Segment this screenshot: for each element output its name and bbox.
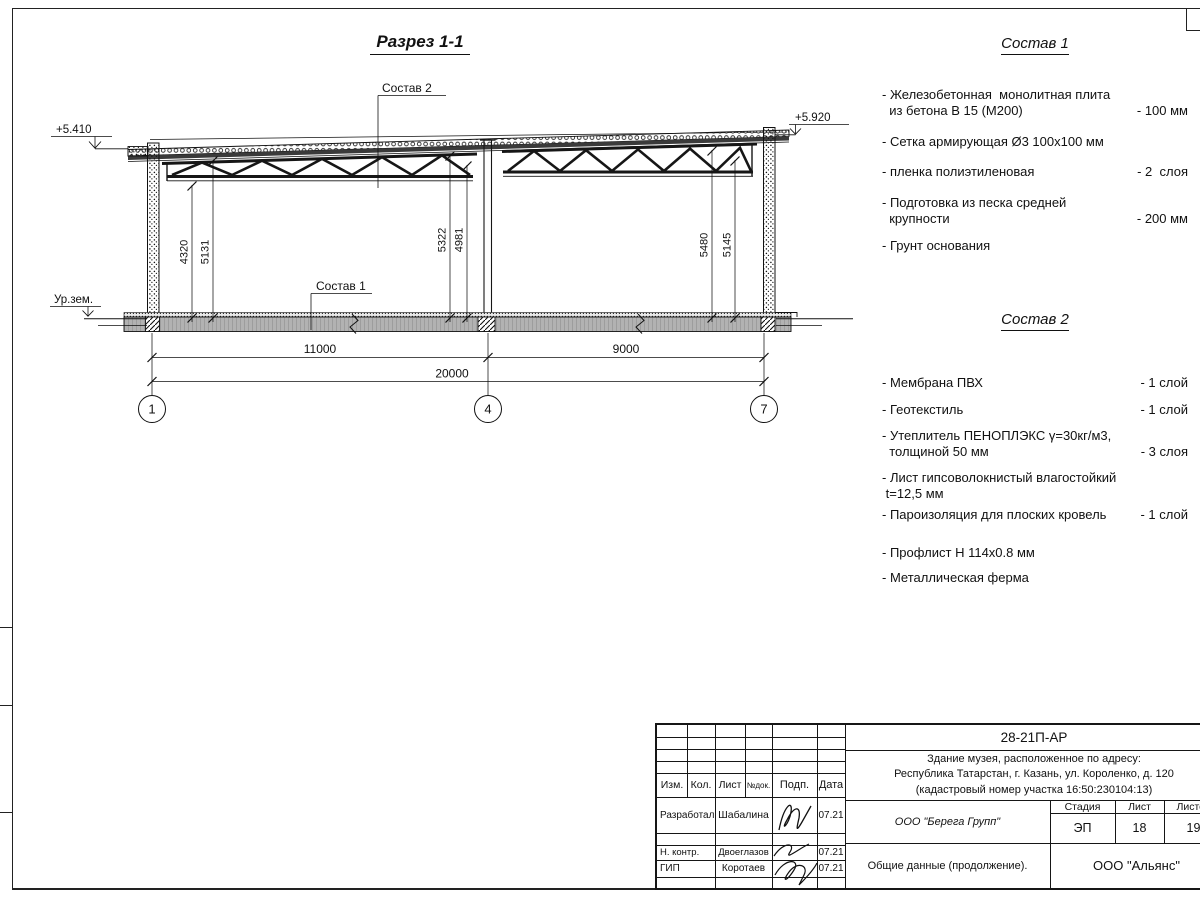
vertical-dimension-labels: 4320 5131 5322 4981 5480 5145: [179, 228, 734, 264]
signature-developer: [772, 797, 817, 835]
svg-text:5131: 5131: [200, 240, 212, 264]
right-wall: [764, 128, 776, 321]
doc-title: Общие данные (продолжение).: [845, 843, 1050, 888]
svg-text:5480: 5480: [699, 233, 711, 257]
stage-label: Стадия: [1050, 800, 1115, 813]
axis-label: 7: [760, 402, 767, 417]
signature-ncontrol-gip: [769, 839, 821, 889]
svg-text:Состав 2: Состав 2: [382, 81, 432, 95]
materials-list-2-title: Состав 2: [882, 312, 1188, 328]
axis-label: 4: [484, 402, 491, 417]
object-description: Здание музея, расположенное по адресу: Р…: [845, 750, 1200, 800]
list-item: - Железобетонная монолитная плита из бет…: [882, 87, 1188, 118]
truss-left: [162, 154, 477, 181]
svg-text:4981: 4981: [454, 228, 466, 252]
materials-list-2: Состав 2 - Мембрана ПВХ- 1 слой - Геотек…: [882, 310, 1188, 600]
svg-text:4320: 4320: [179, 240, 191, 264]
horizontal-dimension-labels: 11000 9000 20000: [304, 342, 640, 381]
col-kol: Кол.: [687, 773, 715, 797]
frame-corner-box: [1186, 8, 1200, 31]
col-list: Лист: [715, 773, 745, 797]
design-company: ООО "Берега Групп": [845, 800, 1050, 843]
list-item: - Лист гипсоволокнистый влагостойкий t=1…: [882, 470, 1188, 501]
date-ncontrol: 07.21: [817, 845, 845, 860]
ground-level-mark: Ур.зем.: [50, 294, 101, 316]
address-line: Здание музея, расположенное по адресу:: [845, 752, 1200, 768]
address-line: (кадастровый номер участка 16:50:230104:…: [845, 783, 1200, 799]
svg-text:5322: 5322: [437, 228, 449, 252]
col-podp: Подп.: [772, 773, 817, 797]
list-item: - пленка полиэтиленовая- 2 слоя: [882, 164, 1188, 180]
list-item: - Металлическая ферма: [882, 570, 1188, 586]
title-block: Изм. Кол. Лист №док. Подп. Дата Разработ…: [655, 723, 1200, 890]
sheets-label: Листов: [1164, 800, 1200, 813]
leader-sostav2: Состав 2: [378, 81, 446, 188]
axis-bubbles: 1 4 7: [139, 396, 778, 423]
list-item: - Профлист Н 114х0.8 мм: [882, 545, 1188, 561]
doc-number: 28-21П-АР: [845, 725, 1200, 750]
middle-column: [480, 140, 496, 317]
contractor: ООО "Альянс": [1050, 843, 1200, 888]
sheet-value: 18: [1115, 813, 1164, 843]
date-gip: 07.21: [817, 860, 845, 877]
view-title: Разрез 1-1: [376, 32, 463, 51]
role-developer: Разработал: [657, 797, 715, 833]
drawing-sheet: Разрез 1-1: [0, 0, 1200, 900]
frame-margin-tick: [0, 812, 12, 813]
materials-list-1-title: Состав 1: [882, 36, 1188, 52]
svg-text:+5.920: +5.920: [795, 112, 831, 124]
section-drawing: Разрез 1-1: [0, 0, 880, 440]
svg-text:Состав 1: Состав 1: [316, 279, 366, 293]
frame-margin-tick: [0, 705, 12, 706]
list-item: - Мембрана ПВХ- 1 слой: [882, 375, 1188, 391]
name-developer: Шабалина: [715, 797, 772, 833]
elevation-mark-left: +5.410: [51, 124, 128, 149]
col-data: Дата: [817, 773, 845, 797]
name-ncontrol: Двоеглазов: [715, 845, 772, 860]
svg-text:9000: 9000: [613, 342, 640, 356]
svg-text:20000: 20000: [435, 367, 469, 381]
col-izm: Изм.: [657, 773, 687, 797]
svg-text:11000: 11000: [304, 342, 337, 356]
list-item: - Геотекстиль- 1 слой: [882, 402, 1188, 418]
sheets-value: 19: [1164, 813, 1200, 843]
svg-text:+5.410: +5.410: [56, 124, 92, 136]
list-item: - Сетка армирующая Ø3 100х100 мм: [882, 134, 1188, 150]
left-wall: [148, 143, 160, 320]
svg-text:Ур.зем.: Ур.зем.: [54, 294, 93, 306]
axis-label: 1: [148, 402, 155, 417]
horizontal-dimensions: [148, 333, 769, 395]
sheet-label: Лист: [1115, 800, 1164, 813]
list-item: - Грунт основания: [882, 238, 1188, 254]
list-item: - Пароизоляция для плоских кровель- 1 сл…: [882, 507, 1188, 523]
role-gip: ГИП: [657, 860, 715, 877]
left-eave-block: [128, 147, 148, 157]
address-line: Республика Татарстан, г. Казань, ул. Кор…: [845, 767, 1200, 783]
role-ncontrol: Н. контр.: [657, 845, 715, 860]
date-developer: 07.21: [817, 797, 845, 833]
floor-slab: [124, 313, 791, 334]
list-item: - Подготовка из песка средней крупности-…: [882, 195, 1188, 226]
list-item: - Утеплитель ПЕНОПЛЭКС γ=30кг/м3, толщин…: [882, 428, 1188, 459]
frame-margin-tick: [0, 627, 12, 628]
stage-value: ЭП: [1050, 813, 1115, 843]
materials-list-1: Состав 1 - Железобетонная монолитная пли…: [882, 34, 1188, 304]
name-gip: Коротаев: [715, 860, 772, 877]
col-ndok: №док.: [745, 773, 772, 797]
truss-right: [502, 144, 757, 176]
svg-text:5145: 5145: [722, 233, 734, 257]
